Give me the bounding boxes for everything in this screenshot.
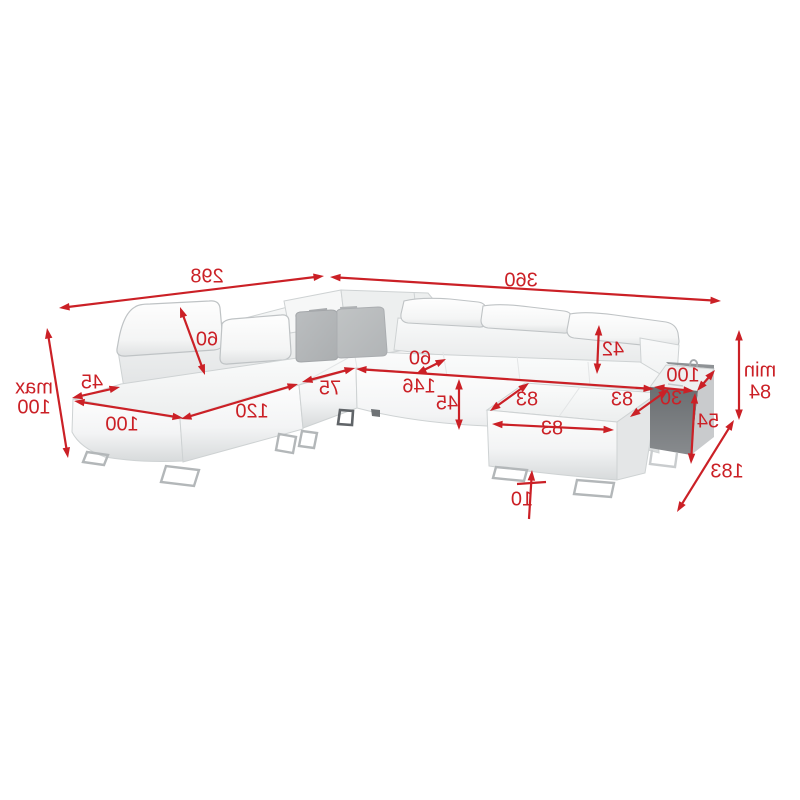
svg-text:54: 54	[697, 410, 719, 432]
svg-text:60: 60	[409, 347, 431, 369]
svg-text:146: 146	[402, 375, 435, 397]
svg-text:60: 60	[196, 328, 218, 350]
svg-text:45: 45	[81, 371, 103, 393]
svg-text:75: 75	[319, 377, 341, 399]
svg-text:84: 84	[749, 381, 771, 403]
svg-text:45: 45	[436, 392, 458, 414]
svg-text:83: 83	[516, 388, 538, 410]
svg-text:42: 42	[602, 338, 624, 360]
svg-text:100: 100	[17, 396, 50, 418]
svg-text:298: 298	[190, 265, 223, 287]
svg-text:30: 30	[660, 387, 682, 409]
svg-text:min: min	[744, 359, 776, 381]
svg-text:120: 120	[235, 400, 268, 422]
svg-text:max: max	[15, 376, 53, 398]
svg-text:83: 83	[611, 388, 633, 410]
svg-text:360: 360	[504, 269, 537, 291]
svg-text:100: 100	[105, 413, 138, 435]
svg-text:10: 10	[511, 488, 533, 510]
svg-text:83: 83	[541, 417, 563, 439]
svg-text:183: 183	[710, 460, 743, 482]
svg-text:100: 100	[666, 364, 699, 386]
